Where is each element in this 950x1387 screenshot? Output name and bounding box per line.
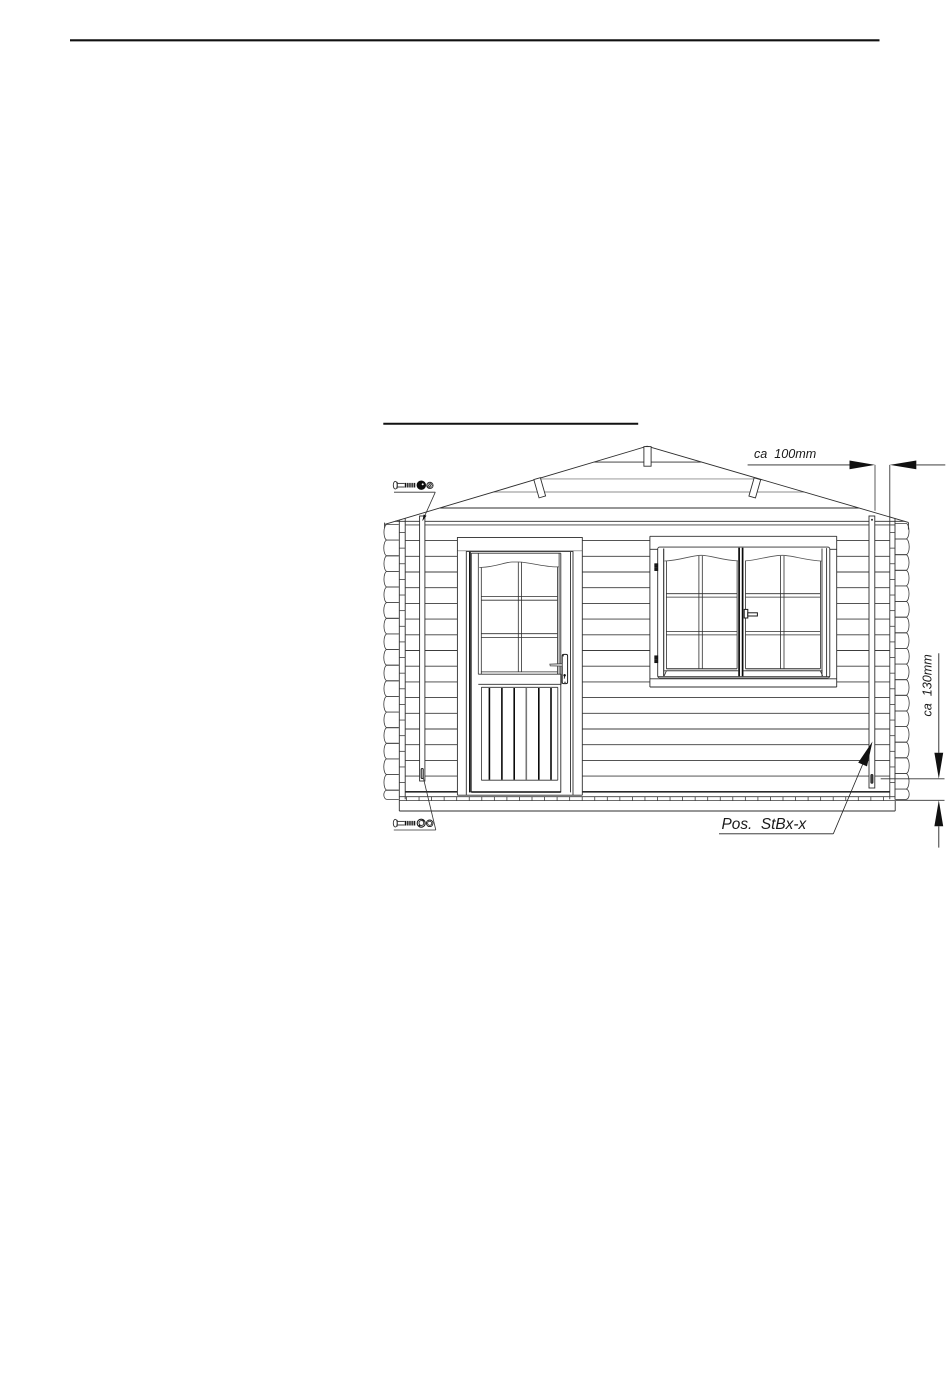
svg-text:ca 130mm: ca 130mm [921,654,935,716]
svg-text:ca 100mm: ca 100mm [754,447,816,461]
svg-text:Pos. StBx-x: Pos. StBx-x [722,816,808,833]
